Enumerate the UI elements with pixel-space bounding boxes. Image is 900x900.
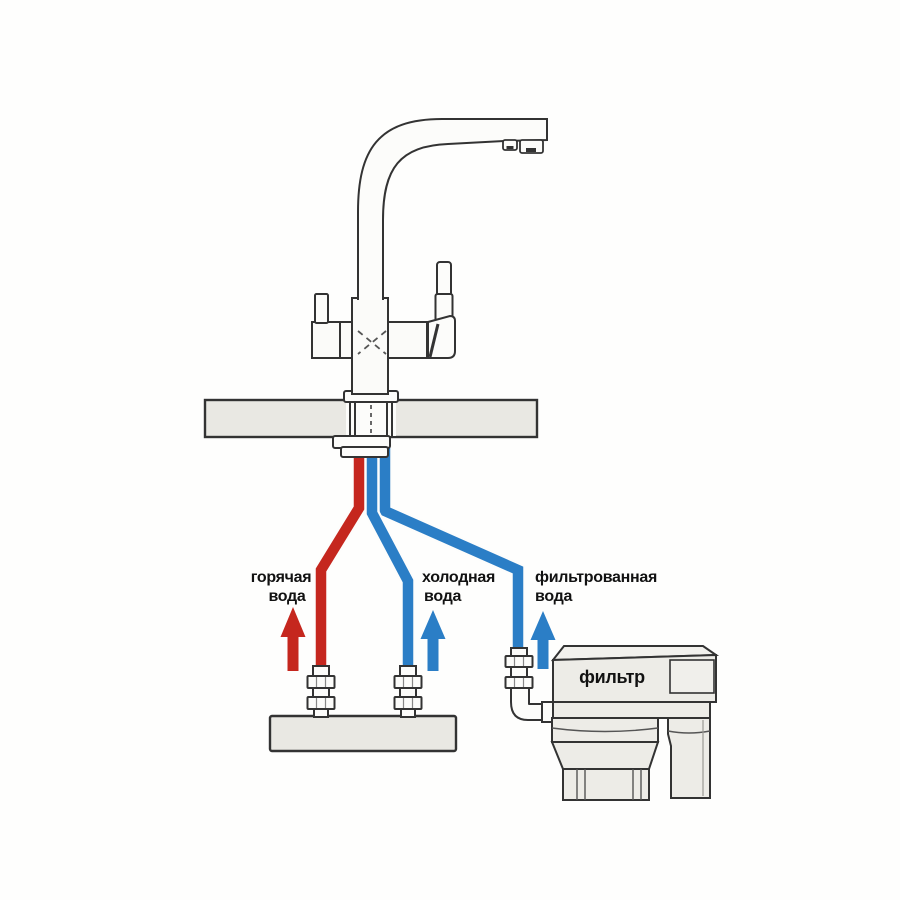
hot-water-label-line1: горячая: [251, 569, 312, 586]
cartridge-left-body: [563, 769, 649, 800]
hot-water-label: горячая вода: [251, 569, 312, 671]
hot-valve-stem-top: [313, 666, 329, 676]
left-handle: [315, 294, 328, 323]
cold-water-label-line1: холодная: [422, 569, 495, 586]
hot-water-label-line2: вода: [268, 588, 305, 605]
filter-front-panel: [670, 660, 714, 693]
cold-valve-stem-bottom: [401, 709, 415, 717]
spout-outlet-right-opening: [526, 148, 536, 152]
cold-water-label: холодная вода: [421, 569, 496, 671]
mounting-nut: [333, 436, 390, 457]
right-handle: [428, 262, 455, 358]
hot-valve-hex-lower: [308, 697, 335, 709]
cold-supply-valve: [395, 666, 422, 717]
cold-valve-stem-top: [400, 666, 416, 676]
mounting-nut-lower: [341, 447, 388, 457]
cartridge-left-taper: [552, 742, 658, 769]
faucet: [312, 119, 547, 394]
hot-valve-hex-upper: [308, 676, 335, 688]
hot-valve-stem-bottom: [314, 709, 328, 717]
cold-water-arrow: [421, 610, 446, 671]
cold-valve-mid: [400, 688, 416, 697]
filtered-water-label-line2: вода: [535, 588, 572, 605]
cold-valve-hex-upper: [395, 676, 422, 688]
faucet-body-fill: [312, 298, 427, 394]
hot-supply-valve: [308, 666, 335, 717]
filter-label: фильтр: [579, 667, 645, 687]
spout-outlet-left-opening: [507, 146, 514, 149]
cold-water-label-line2: вода: [424, 588, 461, 605]
supply-tubes: [321, 444, 518, 668]
diagram-svg: горячая вода холодная вода фильтрованная…: [0, 0, 900, 900]
faucet-spout: [358, 119, 547, 300]
faucet-installation-diagram: горячая вода холодная вода фильтрованная…: [0, 0, 900, 900]
hot-valve-mid: [313, 688, 329, 697]
filter-valve-mid: [511, 667, 527, 677]
filter-unit: фильтр: [542, 646, 716, 800]
filter-valve-stem-top: [511, 648, 527, 656]
cartridge-right-body: [668, 718, 710, 798]
spout-fill: [358, 119, 547, 300]
filter-cartridge-left: [552, 718, 658, 800]
right-handle-lever: [437, 262, 451, 296]
cold-valve-hex-lower: [395, 697, 422, 709]
filter-valve-hex-upper: [506, 656, 533, 667]
filter-cartridge-right: [668, 718, 710, 798]
filter-lower-band: [553, 702, 710, 718]
filter-elbow-fitting: [511, 688, 545, 720]
filtered-water-label-line1: фильтрованная: [535, 569, 657, 586]
hot-water-arrow: [281, 607, 306, 671]
supply-manifold: [270, 716, 456, 751]
filter-valve-hex-lower: [506, 677, 533, 688]
mounting-shank: [346, 401, 396, 437]
